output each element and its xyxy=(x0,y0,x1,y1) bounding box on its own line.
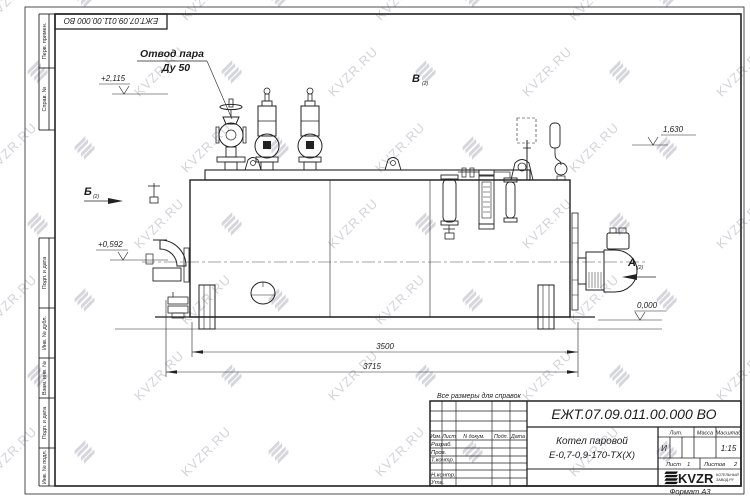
sheet-value: 1 xyxy=(687,462,690,468)
dim-3715-label: 3715 xyxy=(363,362,381,371)
view-marker-v: В (2) xyxy=(412,73,428,87)
elevation-mark-right: 1,630 xyxy=(632,125,696,145)
callout-steam-outlet: Отвод пара Ду 50 xyxy=(137,48,232,119)
kvzr-logo-sub2: ЗАВОД.РУ xyxy=(716,478,734,482)
col-izm: Изм. xyxy=(430,434,441,440)
engineering-drawing-svg: ЕЖТ.07.09.011.00.000 ВО Перв. примен. Сп… xyxy=(0,0,750,500)
row-tkontr: Т.контр. xyxy=(431,458,454,464)
title-doc-number: ЕЖТ.07.09.011.00.000 ВО xyxy=(551,406,716,422)
view-b-subscript: (2) xyxy=(93,194,99,200)
lit-header: Лит. xyxy=(669,431,683,437)
col-podp: Подп. xyxy=(494,434,508,440)
elevation-mark-top: +2,115 xyxy=(99,74,168,94)
view-marker-a: А (2) xyxy=(622,257,656,280)
row-utv: Утв. xyxy=(430,480,444,486)
view-a-subscript: (2) xyxy=(637,265,643,271)
kvzr-logo: KVZR КОТЕЛЬНЫЙ ЗАВОД.РУ xyxy=(664,471,739,486)
support-legs xyxy=(199,285,554,329)
dimension-3715: 3715 xyxy=(166,300,578,377)
manhole xyxy=(251,282,275,304)
callout-line2: Ду 50 xyxy=(161,62,190,74)
scale-value: 1:15 xyxy=(721,444,737,453)
scale-header: Масштаб xyxy=(716,431,743,437)
margin-column: Перв. примен. Справ. № Подп. и дата Инв.… xyxy=(39,14,55,486)
drawing-sheet: KVZR.RUKVZR.RUKVZR.RUKVZR.RUKVZR.RUKVZR.… xyxy=(0,0,750,500)
kvzr-logo-icon xyxy=(664,472,678,485)
margin-label-podp-data-1: Подп. и дата xyxy=(42,256,48,289)
margin-label-inv-podl: Инв. № подл. xyxy=(42,449,48,484)
lifting-lugs xyxy=(245,158,533,181)
sheet-label: Лист xyxy=(665,462,681,468)
safety-valve-2 xyxy=(298,88,322,170)
product-name-line1: Котел паровой xyxy=(556,436,628,447)
reference-note: Все размеры для справок xyxy=(437,392,522,400)
callout-line1: Отвод пара xyxy=(140,48,204,60)
elevation-right-label: 1,630 xyxy=(663,125,684,134)
view-a-letter: А xyxy=(627,257,636,269)
col-ndoc: N докум. xyxy=(463,434,484,440)
boiler-side-view xyxy=(115,88,662,329)
view-b-letter: Б xyxy=(84,186,92,198)
top-doc-number-flipped: ЕЖТ.07.09.011.00.000 ВО xyxy=(64,16,158,25)
margin-label-podp-data-2: Подп. и дата xyxy=(42,406,48,439)
boiler-shell xyxy=(190,180,570,317)
sheets-label: Листов xyxy=(703,462,725,468)
dim-3500-label: 3500 xyxy=(376,342,394,351)
format-label: Формат А3 xyxy=(669,487,711,496)
row-razrab: Разраб. xyxy=(431,442,452,448)
kvzr-logo-text: KVZR xyxy=(678,471,714,486)
elevation-top-label: +2,115 xyxy=(101,74,126,83)
steam-outlet-valve xyxy=(216,99,246,170)
elevation-mark-left: +0,592 xyxy=(96,240,168,260)
elevation-zero-label: 0,000 xyxy=(637,301,658,310)
col-list: Лист xyxy=(441,434,456,440)
row-prov: Пров. xyxy=(431,450,446,456)
view-v-subscript: (2) xyxy=(422,81,428,87)
title-block: Изм. Лист N докум. Подп. Дата Разраб. Пр… xyxy=(430,401,742,486)
sheets-value: 2 xyxy=(733,462,738,468)
margin-label-perv-primen: Перв. примен. xyxy=(42,22,48,59)
water-level-gauges xyxy=(441,168,517,239)
top-right-fittings xyxy=(517,118,567,180)
product-name-line2: Е-0,7-0,9-170-ТХ(Х) xyxy=(549,450,635,461)
safety-valve-1 xyxy=(255,88,279,170)
margin-label-vzam-inv: Взам. инв. № xyxy=(42,361,48,395)
left-elbow-assembly xyxy=(146,183,189,318)
elevation-left-label: +0,592 xyxy=(98,240,123,249)
margin-label-sprav-no: Справ. № xyxy=(42,86,48,111)
mass-header: Масса xyxy=(697,431,713,437)
kvzr-logo-sub1: КОТЕЛЬНЫЙ xyxy=(716,473,739,477)
view-v-letter: В xyxy=(412,73,420,85)
lit-value: И xyxy=(661,444,667,453)
col-data: Дата xyxy=(510,434,525,440)
row-nkontr: Н.контр. xyxy=(431,473,456,479)
view-marker-b: Б (2) xyxy=(84,186,123,204)
margin-label-inv-dubl: Инв. № дубл. xyxy=(42,316,48,351)
dimension-3500: 3500 xyxy=(192,322,578,357)
elevation-mark-zero: 0,000 xyxy=(598,301,666,320)
